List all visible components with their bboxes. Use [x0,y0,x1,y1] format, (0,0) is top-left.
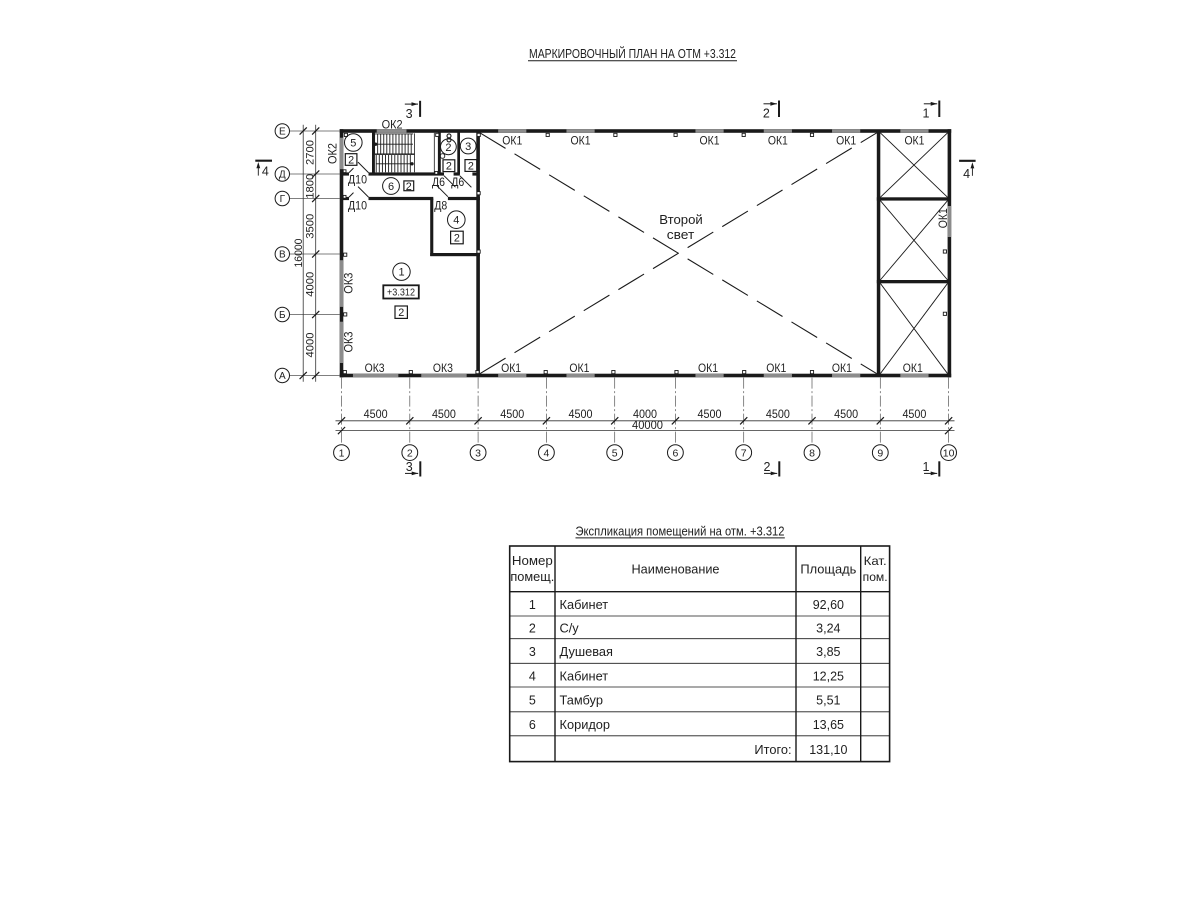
svg-text:4000: 4000 [305,333,317,358]
svg-text:Тамбур: Тамбур [560,693,603,708]
svg-text:4: 4 [963,167,970,181]
svg-text:2: 2 [445,142,451,154]
svg-text:Кабинет: Кабинет [560,597,609,612]
svg-text:3: 3 [465,141,471,153]
svg-text:1: 1 [339,447,345,459]
svg-text:5: 5 [529,694,536,708]
svg-text:ОК1: ОК1 [502,134,522,148]
svg-text:МАРКИРОВОЧНЫЙ ПЛАН НА ОТМ +3.3: МАРКИРОВОЧНЫЙ ПЛАН НА ОТМ +3.312 [529,46,736,61]
svg-text:1: 1 [398,267,404,279]
svg-text:2: 2 [454,233,460,245]
svg-text:Д10: Д10 [348,172,367,186]
svg-text:ОК1: ОК1 [698,361,718,375]
svg-text:1: 1 [923,460,930,474]
svg-text:92,60: 92,60 [813,598,844,612]
svg-text:131,10: 131,10 [809,743,847,757]
svg-text:4500: 4500 [698,407,722,421]
svg-text:Наименование: Наименование [632,562,720,577]
svg-text:4: 4 [543,447,549,459]
svg-text:3: 3 [475,447,481,459]
svg-text:ОК1: ОК1 [904,134,924,148]
svg-text:10: 10 [943,447,955,459]
svg-text:4: 4 [529,669,536,683]
svg-text:ОК2: ОК2 [326,143,340,164]
svg-text:4500: 4500 [569,407,593,421]
svg-text:Душевая: Душевая [560,644,614,659]
svg-text:ОК1: ОК1 [836,134,856,148]
svg-text:В: В [279,250,286,261]
svg-text:ОК1: ОК1 [936,208,950,228]
svg-text:6: 6 [672,447,678,459]
svg-text:5: 5 [350,138,356,150]
svg-text:4: 4 [262,165,269,179]
svg-text:12,25: 12,25 [813,669,844,683]
svg-text:ОК3: ОК3 [365,361,385,375]
svg-text:Е: Е [279,127,286,138]
svg-text:ОК1: ОК1 [501,361,521,375]
svg-text:ОК3: ОК3 [433,361,453,375]
svg-text:А: А [279,371,286,382]
svg-text:2: 2 [406,181,412,193]
svg-text:Б: Б [279,310,286,321]
svg-text:1: 1 [529,598,536,612]
svg-text:Кат.: Кат. [864,554,887,568]
svg-text:Д6: Д6 [432,175,445,189]
svg-text:4500: 4500 [834,407,858,421]
svg-text:Коридор: Коридор [560,717,611,732]
svg-text:2: 2 [529,622,536,636]
svg-text:ОК3: ОК3 [342,331,356,352]
svg-text:помещ.: помещ. [510,569,554,584]
svg-text:5,51: 5,51 [816,694,840,708]
svg-text:Д6: Д6 [451,175,464,189]
svg-text:+3.312: +3.312 [387,287,415,298]
svg-text:Д10: Д10 [348,198,367,212]
svg-text:5: 5 [612,447,618,459]
svg-text:Экспликация помещений на отм.: Экспликация помещений на отм. +3.312 [576,524,785,538]
svg-text:ОК1: ОК1 [832,361,852,375]
svg-text:6: 6 [529,718,536,732]
svg-text:2: 2 [763,106,770,120]
svg-text:40000: 40000 [632,418,663,432]
svg-text:ОК1: ОК1 [571,134,591,148]
svg-text:Г: Г [280,194,286,205]
svg-text:Площадь: Площадь [800,562,856,577]
svg-text:2: 2 [446,161,452,173]
svg-text:7: 7 [741,447,747,459]
svg-text:3: 3 [406,107,413,121]
svg-text:3,24: 3,24 [816,622,840,636]
svg-text:2: 2 [468,161,474,173]
svg-text:4: 4 [453,215,459,227]
svg-text:ОК1: ОК1 [700,134,720,148]
svg-text:Второй: Второй [659,213,703,227]
svg-text:3: 3 [406,460,413,474]
svg-text:9: 9 [877,447,883,459]
svg-text:4500: 4500 [766,407,790,421]
svg-text:Д8: Д8 [434,199,447,213]
svg-text:3: 3 [529,645,536,659]
svg-text:ОК1: ОК1 [766,361,786,375]
svg-text:2700: 2700 [305,140,317,165]
svg-text:8: 8 [809,447,815,459]
svg-text:Д: Д [279,170,286,181]
svg-text:ОК1: ОК1 [569,361,589,375]
svg-text:2: 2 [764,460,771,474]
svg-text:4000: 4000 [305,272,317,297]
svg-text:ОК2: ОК2 [382,117,403,131]
svg-text:4500: 4500 [902,407,926,421]
svg-text:4500: 4500 [432,407,456,421]
svg-text:свет: свет [667,228,695,242]
svg-text:Номер: Номер [512,553,553,568]
svg-text:4500: 4500 [500,407,524,421]
svg-text:3500: 3500 [305,214,317,239]
svg-text:16000: 16000 [293,239,305,268]
svg-text:1: 1 [923,106,930,120]
svg-text:С/у: С/у [560,621,580,636]
svg-text:4500: 4500 [364,407,388,421]
svg-text:Кабинет: Кабинет [560,668,609,683]
svg-text:пом.: пом. [863,570,888,584]
svg-text:6: 6 [388,181,394,193]
svg-text:1800: 1800 [305,174,317,199]
svg-text:ОК1: ОК1 [903,361,923,375]
svg-text:2: 2 [348,155,354,167]
svg-text:Итого:: Итого: [754,742,791,757]
svg-text:2: 2 [398,307,404,319]
svg-text:13,65: 13,65 [813,718,844,732]
svg-text:2: 2 [407,447,413,459]
svg-text:ОК1: ОК1 [768,134,788,148]
svg-text:ОК3: ОК3 [342,273,356,294]
svg-text:3,85: 3,85 [816,645,840,659]
